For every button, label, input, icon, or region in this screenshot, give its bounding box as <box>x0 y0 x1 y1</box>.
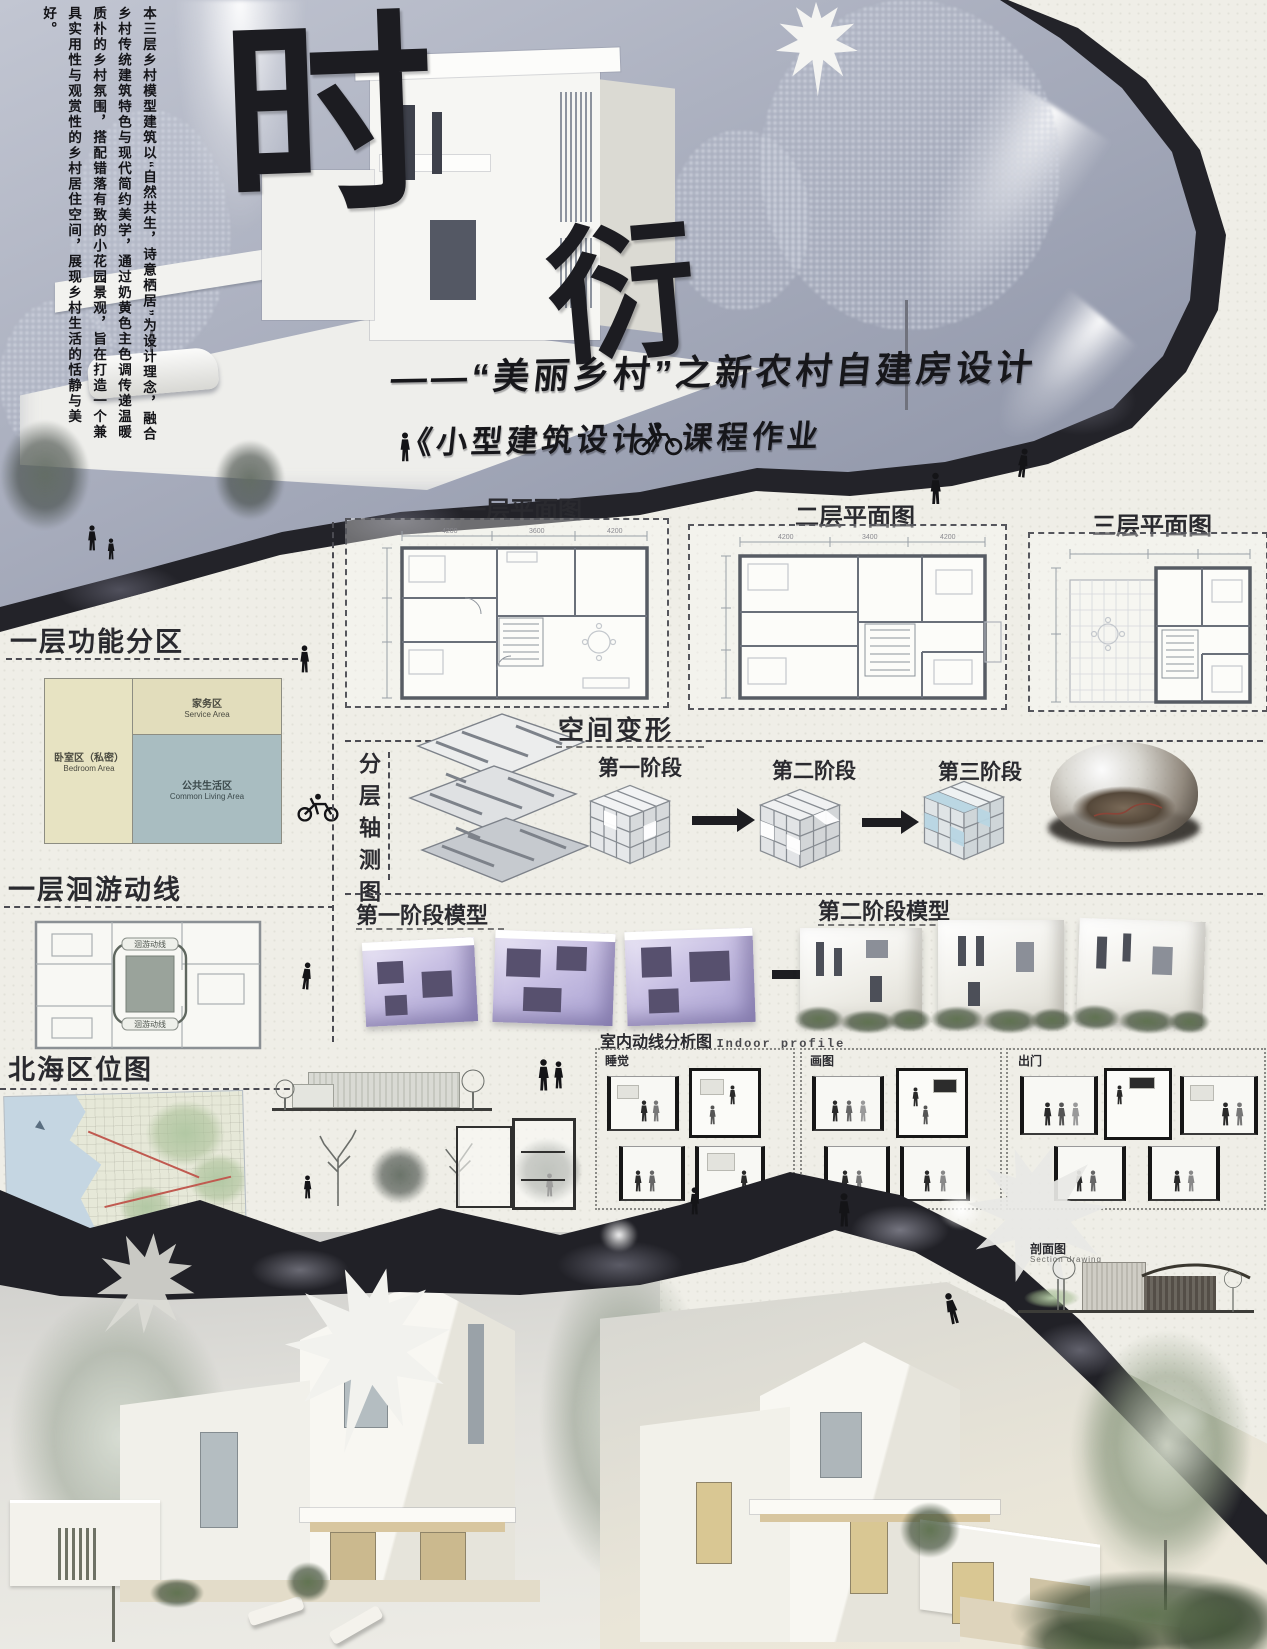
person-silhouette <box>536 1058 551 1092</box>
tree-graphic <box>1082 1330 1252 1560</box>
arrow-right <box>692 816 738 825</box>
dome-site-model <box>1048 742 1200 854</box>
section-sketch <box>456 1126 512 1208</box>
divider-dashed <box>345 893 1263 895</box>
intro-text: 本三层乡村模型建筑以“自然共生，诗意栖居”为设计理念，融合乡村传统建筑特色与现代… <box>8 6 160 448</box>
person-silhouette <box>836 1192 852 1228</box>
indoor-panel-label: 画图 <box>810 1052 834 1069</box>
light-glow <box>600 1218 638 1252</box>
zoning-diagram: 卧室区（私密） Bedroom Area 家务区 Service Area 公共… <box>32 666 287 856</box>
tree-graphic <box>215 440 285 520</box>
location-map <box>4 1091 246 1237</box>
street-elevation-sketch <box>272 1062 492 1120</box>
plan1-drawing: 4200 3600 4200 <box>347 520 667 706</box>
circulation-diagram: 洄游动线 洄游动线 <box>22 914 274 1056</box>
plan2-drawing: 4200 3400 4200 <box>690 526 1005 708</box>
stage1-model-photo <box>492 930 615 1026</box>
circulation-title: 一层洄游动线 <box>8 868 182 907</box>
poster-course-label: 《小型建筑设计》课程作业 <box>399 410 825 462</box>
axon-label: 分层轴测图 <box>352 752 384 912</box>
svg-text:洄游动线: 洄游动线 <box>134 1019 166 1029</box>
poster: 本三层乡村模型建筑以“自然共生，诗意栖居”为设计理念，融合乡村传统建筑特色与现代… <box>0 0 1267 1649</box>
cyclist-silhouette <box>632 420 684 456</box>
svg-text:3400: 3400 <box>862 534 878 541</box>
models-stage1-title: 第一阶段模型 <box>356 898 488 930</box>
zoning-title: 一层功能分区 <box>10 620 184 659</box>
svg-text:洄游动线: 洄游动线 <box>134 939 166 949</box>
section-drawing-block: 剖面图 Section drawing <box>1018 1240 1258 1340</box>
plan1-box: 4200 3600 4200 <box>345 518 669 708</box>
divider-dashed <box>356 928 504 930</box>
zone-bedroom: 卧室区（私密） Bedroom Area <box>44 678 134 844</box>
stage2-model-photo <box>938 920 1064 1024</box>
person-silhouette <box>86 525 98 551</box>
person-silhouette <box>928 472 943 505</box>
person-silhouette <box>552 1060 565 1090</box>
map-boat-mark <box>35 1120 45 1130</box>
divider-dashed <box>6 658 298 660</box>
divider-dashed-vertical <box>388 752 390 880</box>
person-silhouette <box>1014 447 1032 479</box>
maple-leaf-graphic <box>770 0 862 100</box>
svg-text:4200: 4200 <box>442 528 458 535</box>
stage2-cube <box>748 780 852 880</box>
stage2-model-photo <box>800 928 922 1024</box>
plan3-box <box>1028 532 1267 712</box>
plan2-box: 4200 3400 4200 <box>688 524 1007 710</box>
divider-dashed <box>0 1088 300 1090</box>
arrow-right <box>862 818 902 827</box>
title-char-shi: 时 <box>218 8 437 227</box>
stage3-cube <box>912 772 1016 872</box>
section-sketch <box>512 1118 576 1210</box>
models-stage2-title: 第二阶段模型 <box>818 894 950 926</box>
zone-living: 公共生活区 Common Living Area <box>132 734 282 844</box>
indoor-panel-label: 出门 <box>1018 1052 1042 1069</box>
stage1-cube <box>578 776 682 876</box>
person-silhouette <box>299 961 315 990</box>
stage2-model-photo <box>1076 918 1206 1026</box>
zone-service: 家务区 Service Area <box>132 678 282 736</box>
stage1-model-photo <box>362 937 478 1027</box>
plan3-drawing <box>1030 534 1266 710</box>
svg-text:4200: 4200 <box>778 534 794 541</box>
divider-dashed <box>4 906 334 908</box>
svg-text:4200: 4200 <box>940 534 956 541</box>
stage1-model-photo <box>624 928 755 1026</box>
transform-title: 空间变形 <box>558 710 674 747</box>
person-walking-dog-silhouette <box>688 1186 701 1216</box>
person-silhouette <box>298 645 311 673</box>
location-title: 北海区位图 <box>8 1048 153 1087</box>
svg-text:3600: 3600 <box>529 528 545 535</box>
indoor-panel-label: 睡觉 <box>605 1052 629 1069</box>
model-screen-facade <box>560 92 594 222</box>
svg-text:4200: 4200 <box>607 528 623 535</box>
divider-dashed <box>556 746 704 748</box>
person-silhouette <box>106 538 116 560</box>
divider-dashed-vertical <box>332 522 334 1042</box>
